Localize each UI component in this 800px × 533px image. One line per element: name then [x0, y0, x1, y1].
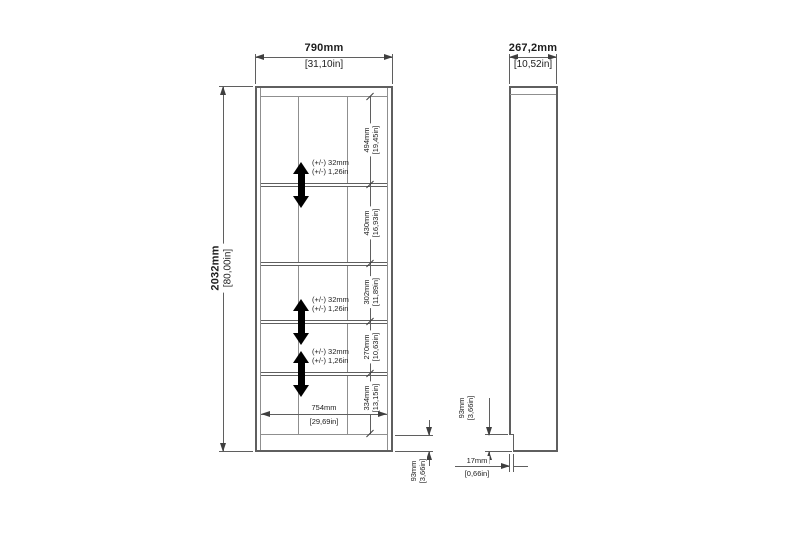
inner-width-dim-line	[261, 414, 387, 415]
compartment-dim-1: 430mm [16,93in]	[362, 207, 380, 240]
shelf-adjust-note-2: (+/-) 32mm (+/-) 1,26in	[312, 296, 349, 313]
side-outline-top	[509, 86, 557, 88]
base-recess-dim-tail	[513, 466, 528, 467]
compartment-dim-1-in: [16,93in]	[371, 209, 380, 238]
arrow-head-up	[293, 299, 309, 311]
compartment-dim-4-in: [13,15in]	[371, 384, 380, 413]
front-plinth-dim-mm: 93mm	[409, 459, 418, 484]
inner-width-dim-in: [29,69in]	[308, 417, 341, 426]
dim-arrow-down-icon	[426, 427, 432, 436]
front-plinth-dim-in: [3,66in]	[418, 459, 427, 484]
side-depth-dim-mm: 267,2mm	[509, 42, 558, 54]
side-top-panel-line	[510, 94, 556, 95]
compartment-dim-4-mm: 334mm	[362, 384, 371, 413]
front-width-dim-line	[255, 57, 393, 58]
shelf-adjust-note-1: (+/-) 32mm (+/-) 1,26in	[312, 159, 349, 176]
base-recess-dim-in: [0,66in]	[463, 469, 492, 478]
compartment-dim-0: 494mm [19,45in]	[362, 124, 380, 157]
arrow-head-down	[293, 196, 309, 208]
arrow-shaft	[298, 174, 305, 196]
side-outline-back	[556, 86, 558, 452]
front-height-dim-label: 2032mm [80,00in]	[209, 243, 234, 292]
arrow-head-up	[293, 162, 309, 174]
dim-arrow-right-icon	[501, 463, 510, 469]
double-arrow-icon	[293, 162, 309, 208]
double-arrow-icon	[293, 299, 309, 345]
compartment-dim-3-mm: 270mm	[362, 333, 371, 362]
base-recess-dim-mm: 17mm	[465, 456, 490, 465]
dim-arrow-left-icon	[261, 411, 270, 417]
front-height-dim-in: [80,00in]	[223, 245, 235, 290]
side-plinth-dim-mm: 93mm	[457, 396, 466, 421]
front-right-panel-line	[387, 88, 388, 450]
shelf-adjust-note-3: (+/-) 32mm (+/-) 1,26in	[312, 348, 349, 365]
compartment-dim-0-mm: 494mm	[362, 126, 371, 155]
dim-arrow-down-icon	[486, 427, 492, 436]
dim-extension-line	[513, 454, 514, 472]
side-plinth-dim-label: 93mm [3,66in]	[457, 394, 475, 423]
compartment-dim-2-in: [11,89in]	[371, 278, 380, 306]
front-width-dim-mm: 790mm	[305, 42, 344, 54]
side-depth-dim-in: [10,52in]	[512, 59, 554, 70]
front-outline-right	[391, 86, 393, 452]
compartment-dim-1-mm: 430mm	[362, 209, 371, 238]
compartment-dim-4: 334mm [13,15in]	[362, 382, 380, 415]
front-outline-left	[255, 86, 257, 452]
dim-arrow-left-icon	[255, 54, 264, 60]
front-outline-bottom	[255, 450, 393, 452]
compartment-dim-0-in: [19,45in]	[371, 126, 380, 155]
side-plinth-dim-in: [3,66in]	[466, 396, 475, 421]
side-outline-front	[509, 86, 511, 434]
arrow-head-down	[293, 385, 309, 397]
front-plinth-dim-label: 93mm [3,66in]	[409, 457, 427, 486]
shelf-adjust-note-3-in: (+/-) 1,26in	[312, 357, 349, 366]
side-outline-bottom	[513, 450, 557, 452]
front-height-dim-mm: 2032mm	[209, 245, 222, 290]
dim-arrow-right-icon	[384, 54, 393, 60]
technical-drawing: 790mm [31,10in] 2032mm [80,00in] 494mm […	[0, 0, 800, 533]
inner-width-dim-mm: 754mm	[309, 403, 338, 412]
front-outline-top	[255, 86, 393, 88]
arrow-shaft	[298, 363, 305, 385]
front-left-panel-line	[260, 88, 261, 450]
shelf-adjust-note-2-in: (+/-) 1,26in	[312, 305, 349, 314]
dim-arrow-right-icon	[378, 411, 387, 417]
double-arrow-icon	[293, 351, 309, 397]
compartment-dim-2: 302mm [11,89in]	[362, 276, 380, 308]
arrow-shaft	[298, 311, 305, 333]
dim-arrow-up-icon	[220, 86, 226, 95]
compartment-dim-3: 270mm [10,63in]	[362, 331, 380, 364]
front-width-dim-in: [31,10in]	[303, 59, 345, 70]
shelf-adjust-note-1-in: (+/-) 1,26in	[312, 168, 349, 177]
arrow-head-up	[293, 351, 309, 363]
compartment-dim-2-mm: 302mm	[362, 278, 371, 306]
compartment-dim-3-in: [10,63in]	[371, 333, 380, 362]
arrow-head-down	[293, 333, 309, 345]
side-notch-face-line	[513, 434, 514, 451]
dim-arrow-down-icon	[220, 443, 226, 452]
